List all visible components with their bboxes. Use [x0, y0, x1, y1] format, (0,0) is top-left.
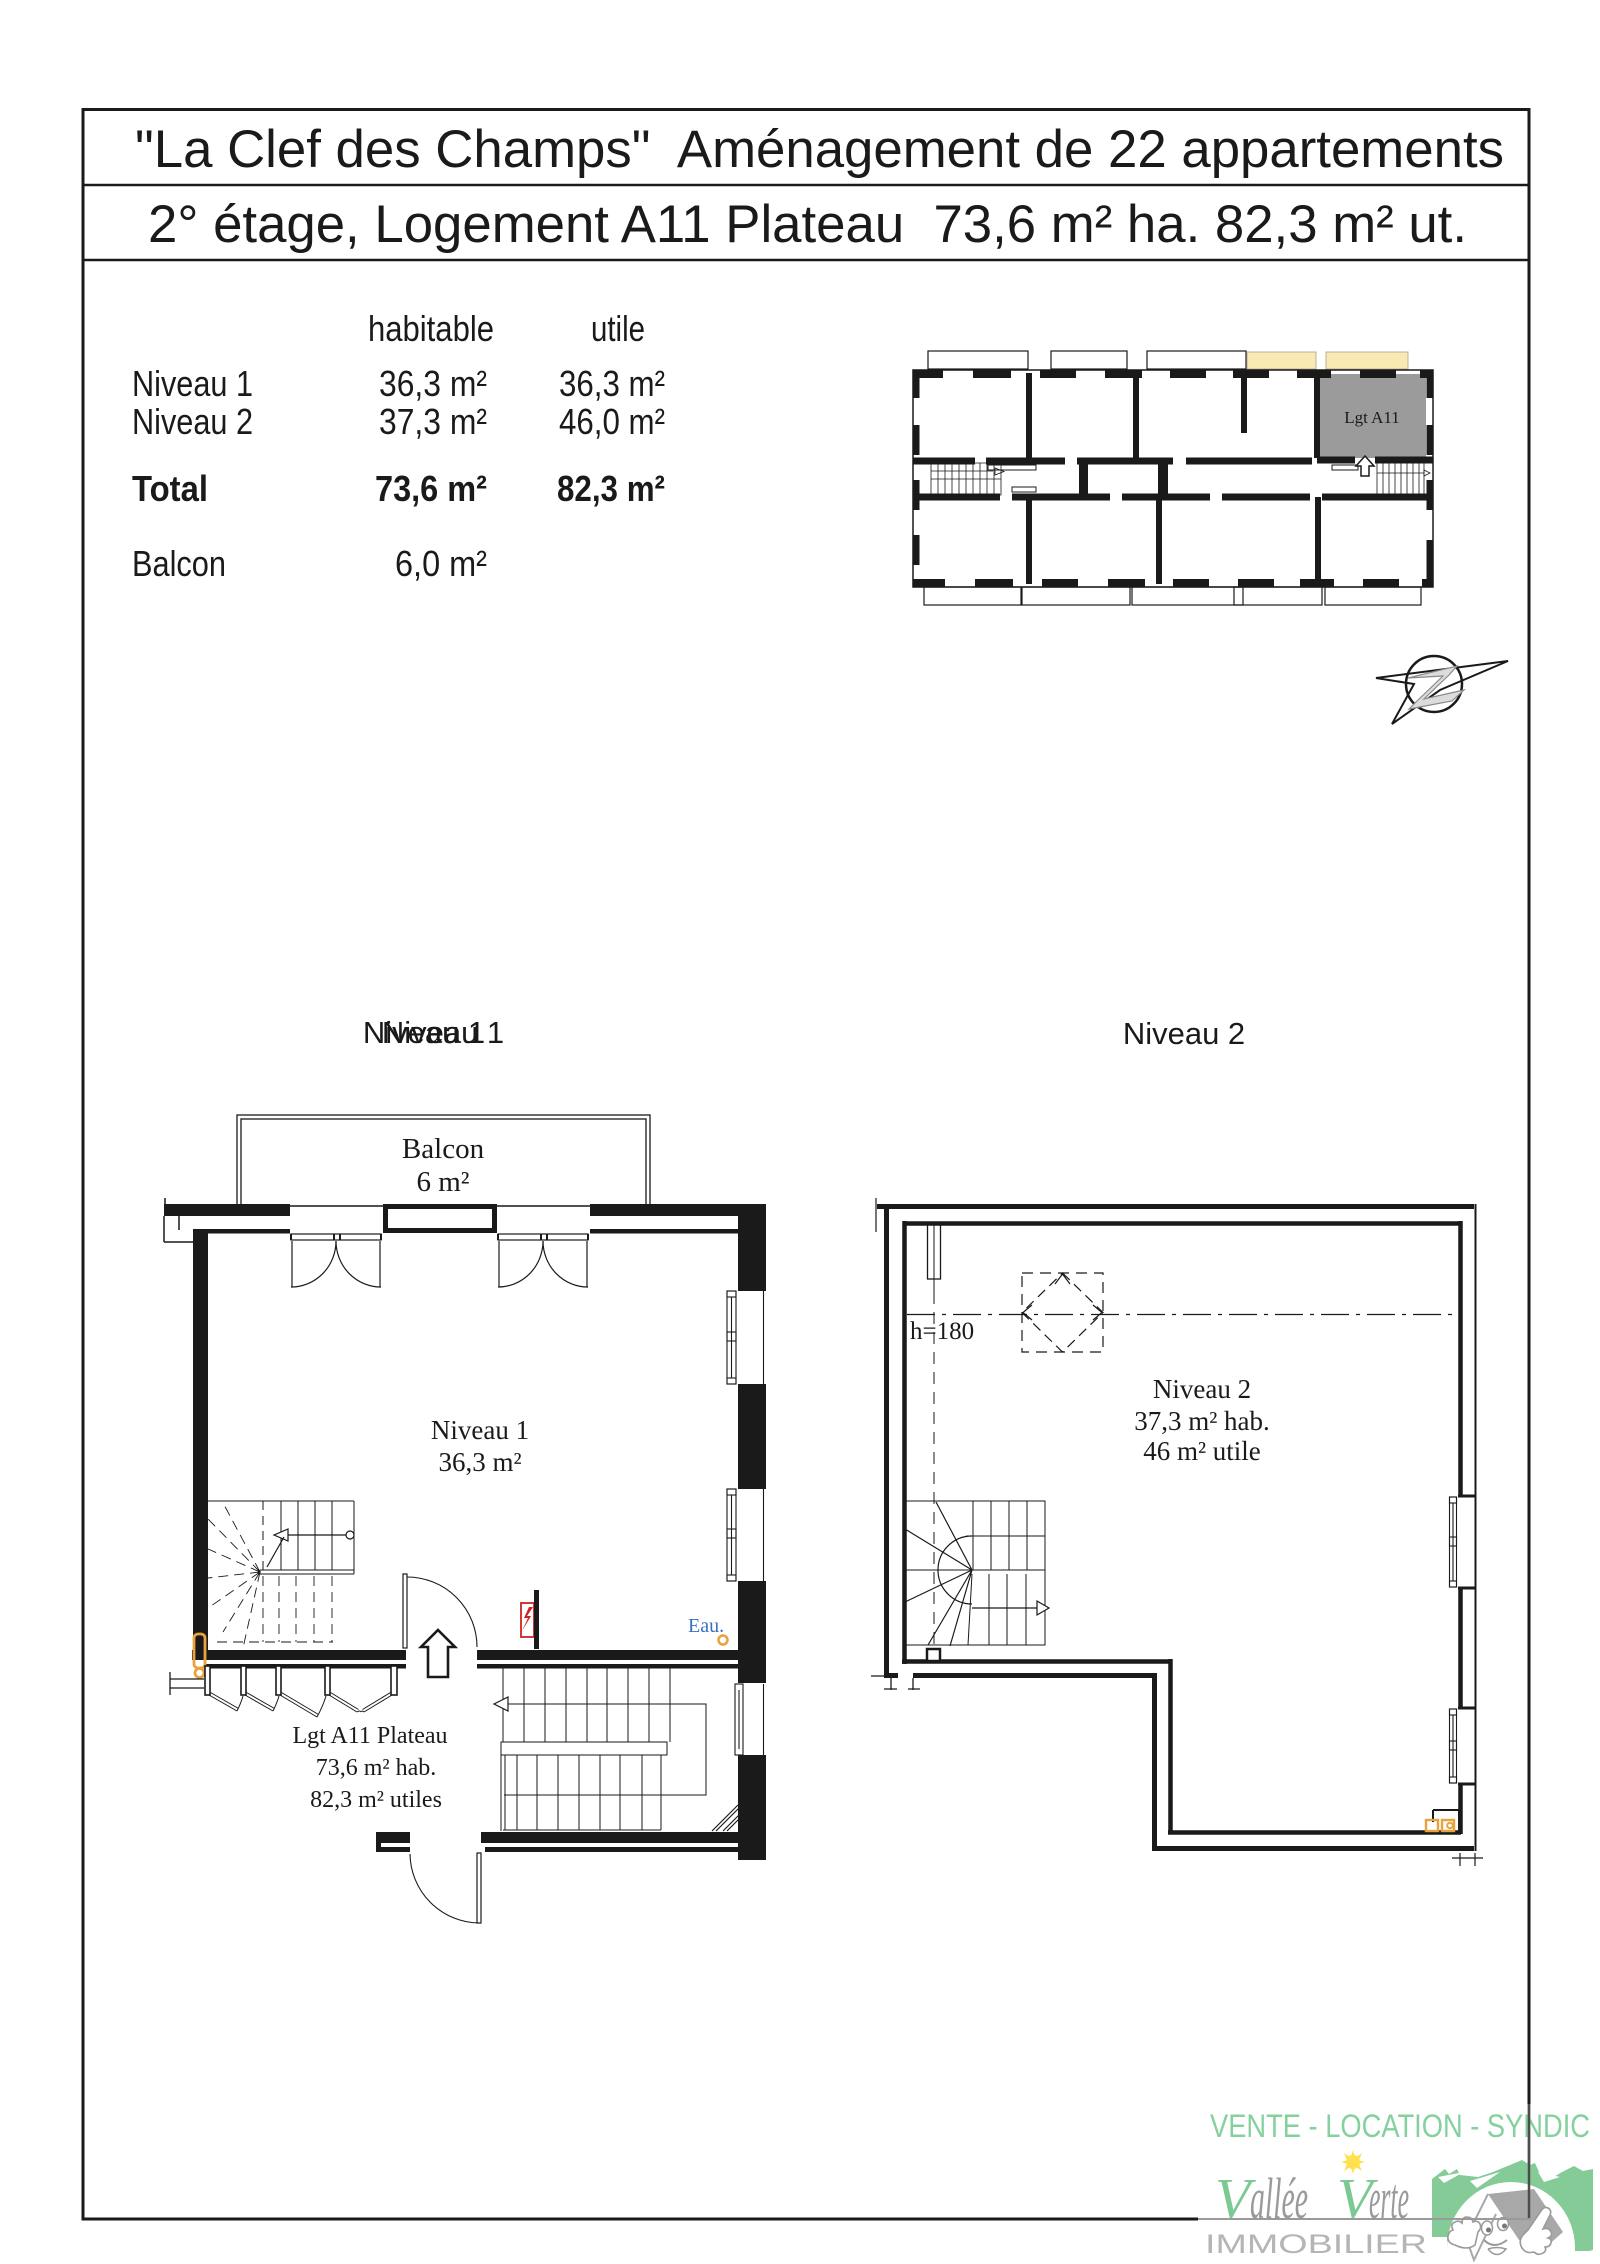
- svg-text:Total: Total: [132, 468, 208, 509]
- svg-text:36,3 m²: 36,3 m²: [438, 1447, 521, 1477]
- svg-text:Lgt A11: Lgt A11: [1344, 408, 1400, 427]
- svg-text:utile: utile: [591, 308, 645, 349]
- svg-text:73,6 m² hab.: 73,6 m² hab.: [316, 1755, 437, 1781]
- svg-text:Niveau 2: Niveau 2: [1123, 1016, 1245, 1051]
- svg-text:36,3 m²: 36,3 m²: [379, 363, 487, 404]
- svg-text:Niveau 1: Niveau 1: [132, 363, 253, 404]
- svg-text:h=180: h=180: [910, 1318, 974, 1345]
- svg-text:Niveau 2: Niveau 2: [132, 401, 253, 442]
- svg-text:Niveau 1: Niveau 1: [431, 1415, 529, 1445]
- svg-text:2° étage, Logement A11 Plateau: 2° étage, Logement A11 Plateau 73,6 m² h…: [148, 195, 1467, 254]
- svg-text:36,3 m²: 36,3 m²: [559, 363, 665, 404]
- svg-text:habitable: habitable: [368, 308, 494, 349]
- svg-text:6,0 m²: 6,0 m²: [395, 543, 487, 584]
- svg-text:VENTE - LOCATION - SYNDIC: VENTE - LOCATION - SYNDIC: [1210, 2108, 1590, 2144]
- svg-text:allée: allée: [1250, 2166, 1308, 2231]
- svg-text:73,6 m²: 73,6 m²: [375, 468, 487, 509]
- svg-text:37,3 m²: 37,3 m²: [379, 401, 487, 442]
- svg-text:46 m² utile: 46 m² utile: [1143, 1436, 1261, 1466]
- svg-text:"La Clef des Champs" Aménagem: "La Clef des Champs" Aménagement de 22 a…: [135, 120, 1504, 179]
- svg-text:46,0 m²: 46,0 m²: [559, 401, 665, 442]
- svg-text:82,3 m² utiles: 82,3 m² utiles: [310, 1787, 442, 1813]
- svg-text:Niveau 1: Niveau 1: [382, 1015, 504, 1050]
- svg-text:Balcon: Balcon: [132, 543, 226, 584]
- svg-text:IMMOBILIER: IMMOBILIER: [1205, 2229, 1427, 2259]
- svg-text:6 m²: 6 m²: [416, 1166, 469, 1198]
- svg-text:Lgt A11 Plateau: Lgt A11 Plateau: [292, 1723, 447, 1749]
- svg-text:82,3 m²: 82,3 m²: [557, 468, 665, 509]
- svg-text:Eau.: Eau.: [688, 1615, 724, 1637]
- svg-text:37,3 m² hab.: 37,3 m² hab.: [1134, 1406, 1270, 1436]
- svg-text:erte: erte: [1369, 2166, 1409, 2231]
- svg-text:Balcon: Balcon: [402, 1133, 485, 1165]
- svg-text:Niveau 2: Niveau 2: [1153, 1374, 1251, 1404]
